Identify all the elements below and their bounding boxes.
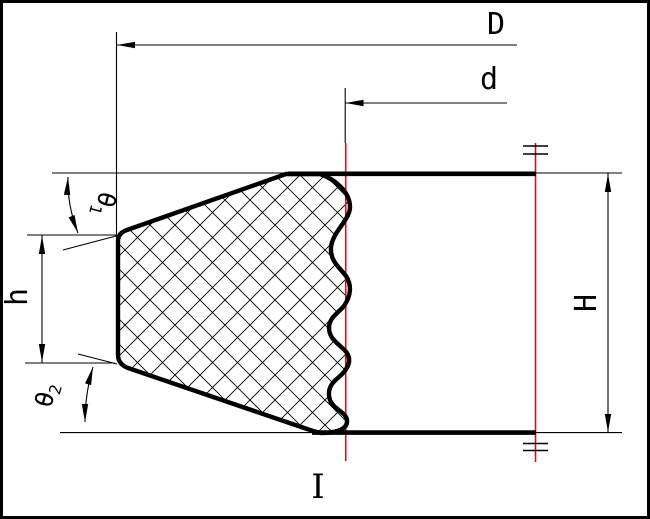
drawing-canvas: D d H h θ1 θ2 (0, 0, 650, 519)
arrow-left-icon (117, 42, 135, 48)
label-h: h (0, 288, 35, 306)
arrow-up-icon (605, 174, 611, 192)
label-d: d (480, 62, 498, 97)
label-H: H (569, 294, 604, 312)
arrow-up-icon (85, 366, 96, 385)
dimension-h: h (0, 235, 117, 363)
dimension-d: d (345, 62, 507, 143)
arrow-left-icon (346, 100, 364, 106)
arrow-down-icon (69, 215, 81, 234)
arrow-up-icon (64, 177, 71, 195)
dimension-theta1: θ1 (63, 177, 122, 250)
dimension-H: H (569, 173, 611, 433)
seal-section-hatch (118, 174, 350, 433)
label-D: D (487, 7, 505, 42)
arrow-up-icon (39, 236, 45, 254)
arrow-down-icon (39, 344, 45, 362)
label-section-I: I (311, 467, 324, 507)
arrow-down-icon (82, 404, 88, 422)
arrow-down-icon (605, 414, 611, 432)
label-theta2: θ2 (29, 379, 66, 411)
technical-drawing: D d H h θ1 θ2 (0, 0, 650, 519)
dimension-theta2: θ2 (29, 354, 117, 422)
